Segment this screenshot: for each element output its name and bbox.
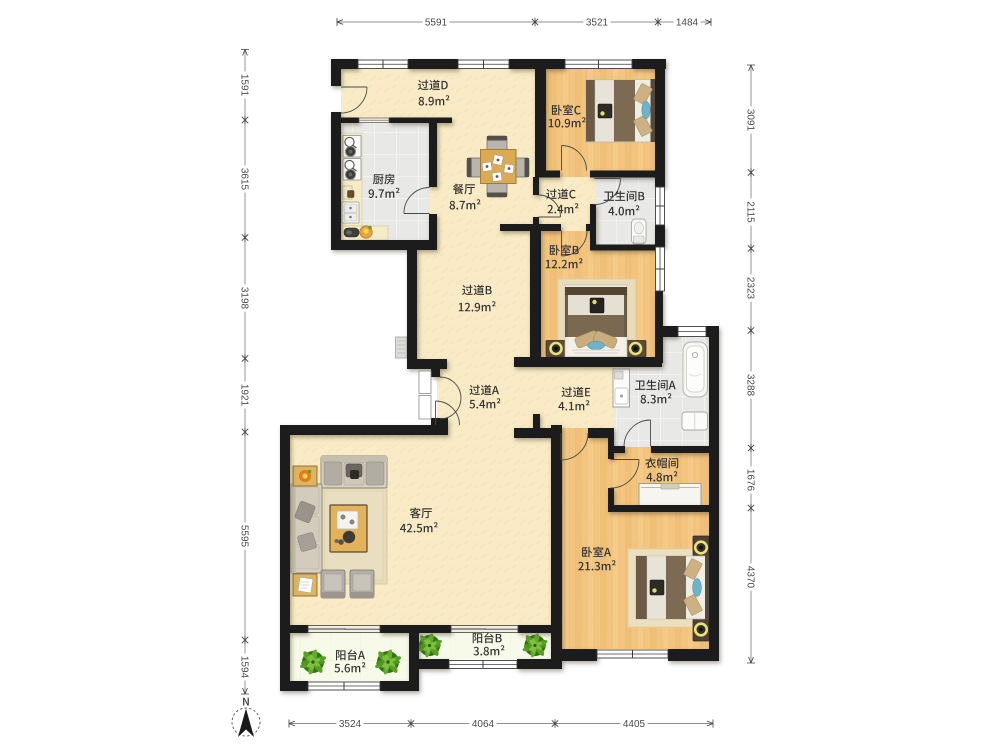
svg-text:3521: 3521 [586,18,609,29]
svg-text:2323: 2323 [745,277,756,300]
svg-text:1676: 1676 [745,469,756,492]
svg-text:1484: 1484 [676,18,699,29]
svg-text:1594: 1594 [239,656,250,679]
svg-text:5595: 5595 [239,525,250,548]
svg-text:2115: 2115 [745,201,756,223]
svg-text:1921: 1921 [239,384,250,407]
svg-text:1591: 1591 [239,74,250,97]
svg-text:4370: 4370 [745,566,756,589]
svg-text:3198: 3198 [239,287,250,310]
svg-text:3524: 3524 [339,719,362,730]
svg-text:3615: 3615 [239,168,250,191]
svg-text:4405: 4405 [623,719,646,730]
svg-text:5591: 5591 [425,18,448,29]
svg-text:4064: 4064 [472,719,495,730]
svg-text:3288: 3288 [745,374,756,397]
svg-text:3091: 3091 [745,109,756,132]
